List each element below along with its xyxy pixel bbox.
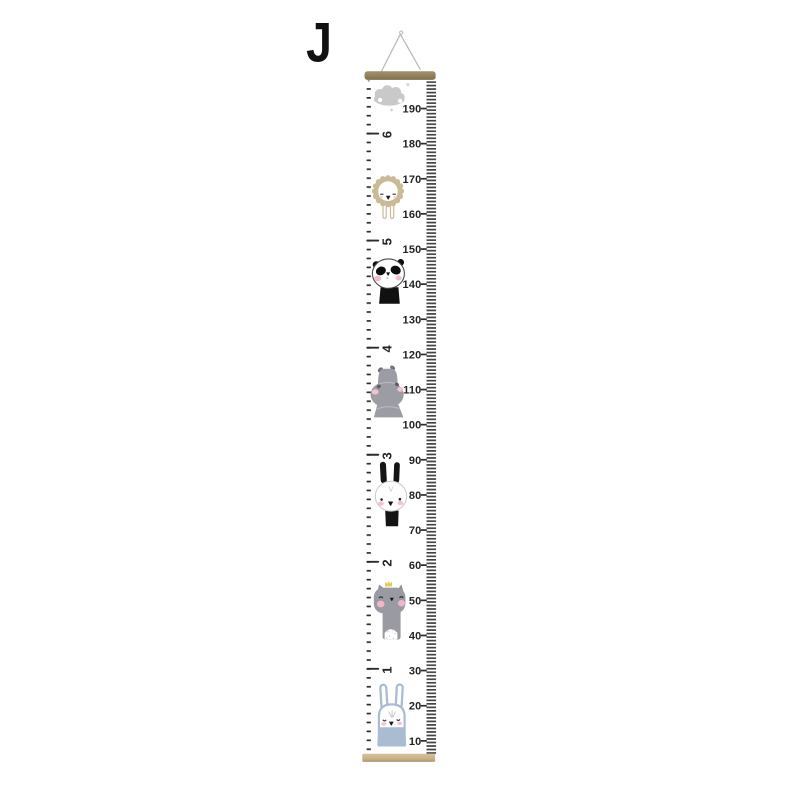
- svg-text:50: 50: [409, 595, 422, 607]
- svg-text:120: 120: [403, 349, 422, 361]
- svg-text:J: J: [306, 12, 332, 74]
- svg-text:70: 70: [409, 525, 422, 537]
- svg-text:4: 4: [379, 345, 394, 353]
- svg-text:3: 3: [379, 452, 394, 459]
- svg-text:6: 6: [379, 131, 394, 138]
- svg-text:180: 180: [403, 139, 422, 151]
- svg-text:140: 140: [403, 279, 422, 291]
- svg-text:110: 110: [403, 385, 421, 397]
- svg-text:80: 80: [409, 490, 422, 502]
- svg-text:100: 100: [403, 420, 422, 432]
- svg-text:1: 1: [379, 666, 394, 673]
- svg-text:170: 170: [403, 174, 422, 186]
- svg-text:10: 10: [409, 736, 422, 748]
- svg-text:20: 20: [409, 701, 422, 713]
- svg-text:150: 150: [403, 244, 422, 256]
- svg-text:60: 60: [409, 560, 422, 572]
- svg-text:30: 30: [409, 666, 422, 678]
- svg-text:90: 90: [409, 455, 422, 467]
- svg-text:2: 2: [379, 559, 394, 566]
- svg-text:130: 130: [403, 314, 422, 326]
- svg-text:190: 190: [403, 104, 422, 116]
- svg-text:160: 160: [403, 209, 422, 221]
- svg-text:5: 5: [379, 238, 394, 245]
- svg-text:40: 40: [409, 630, 422, 642]
